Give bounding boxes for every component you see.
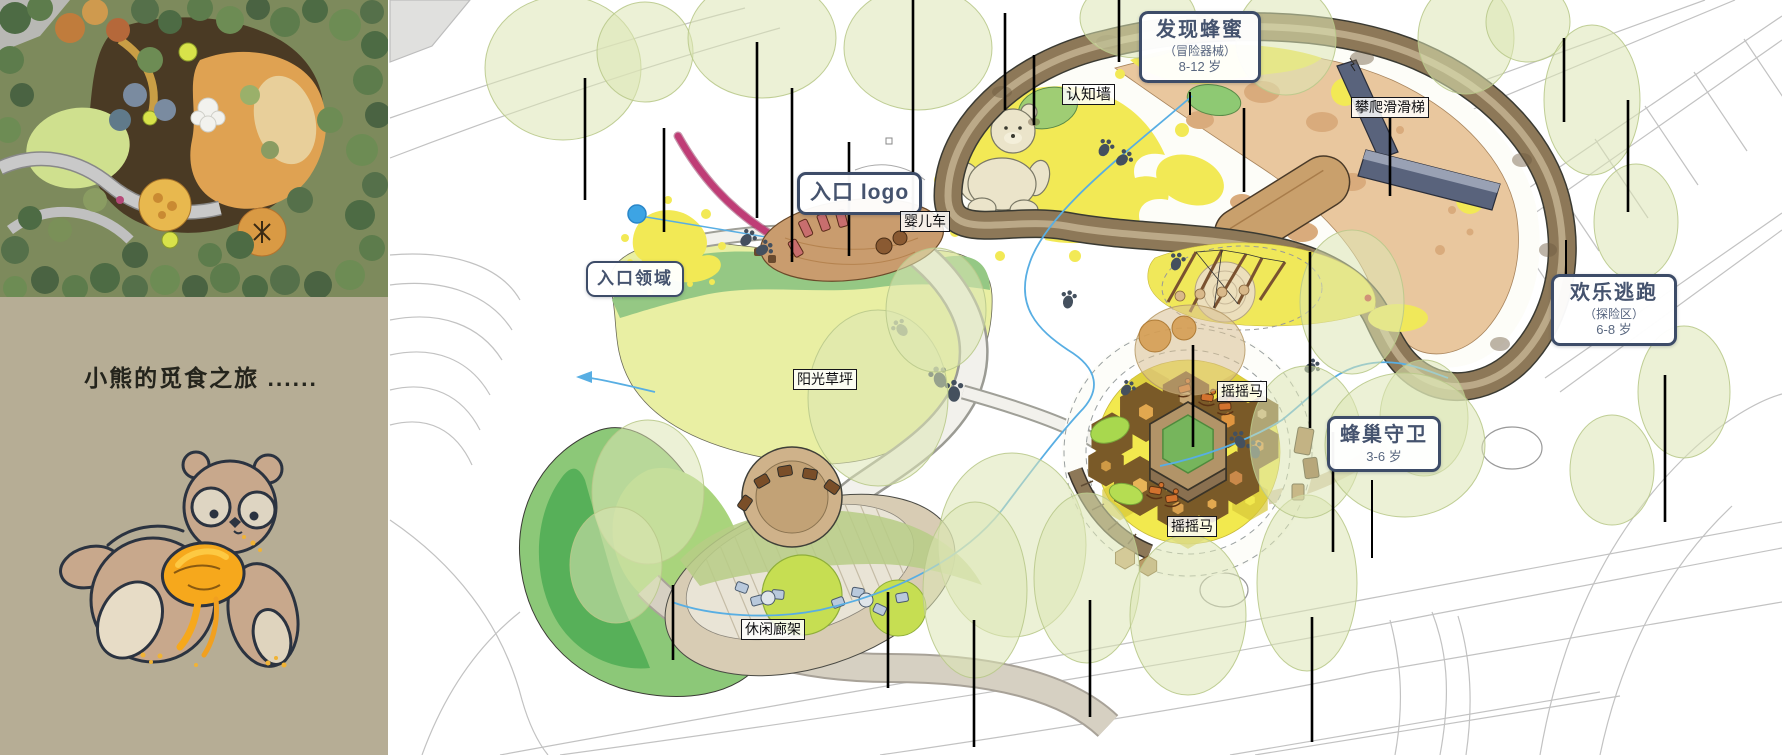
callout-subtitle: （探险区）	[1562, 307, 1666, 322]
callout-entrance-area: 入口领域	[586, 261, 684, 297]
bear-mascot-illustration	[48, 415, 300, 687]
callout-age: 3-6 岁	[1338, 449, 1430, 466]
callout-title: 发现蜂蜜	[1150, 18, 1250, 44]
callout-discover-honey: 发现蜂蜜 （冒险器械） 8-12 岁	[1139, 11, 1261, 83]
masterplan-thumbnail	[0, 0, 388, 297]
tag-sunny-lawn: 阳光草坪	[793, 369, 857, 390]
tag-climbing-slide: 攀爬滑滑梯	[1351, 97, 1429, 118]
callout-title: 蜂巢守卫	[1338, 423, 1430, 449]
tag-leisure-pergola: 休闲廊架	[741, 619, 805, 640]
tag-stroller: 婴儿车	[900, 211, 950, 232]
playground-masterplan-board: 小熊的觅食之旅 ......	[0, 0, 1782, 755]
callout-beehive-guard: 蜂巢守卫 3-6 岁	[1327, 416, 1441, 472]
tag-rocking-horse-lower: 摇摇马	[1167, 516, 1217, 537]
tag-rocking-horse-upper: 摇摇马	[1217, 381, 1267, 402]
callout-happy-escape: 欢乐逃跑 （探险区） 6-8 岁	[1551, 274, 1677, 346]
masterplan-rendering	[0, 0, 388, 297]
tag-cognition-wall: 认知墙	[1062, 84, 1115, 105]
water-dot	[628, 205, 646, 223]
story-caption: 小熊的觅食之旅 ......	[0, 359, 388, 393]
story-panel: 小熊的觅食之旅 ......	[0, 297, 388, 755]
callout-subtitle: （冒险器械）	[1150, 44, 1250, 59]
callout-title: 欢乐逃跑	[1562, 281, 1666, 307]
callout-entrance-logo: 入口 logo	[797, 172, 922, 215]
callout-age: 6-8 岁	[1562, 322, 1666, 339]
bear-mascot-icon	[48, 415, 300, 687]
callout-age: 8-12 岁	[1150, 59, 1250, 76]
stream-arrow	[576, 371, 592, 383]
